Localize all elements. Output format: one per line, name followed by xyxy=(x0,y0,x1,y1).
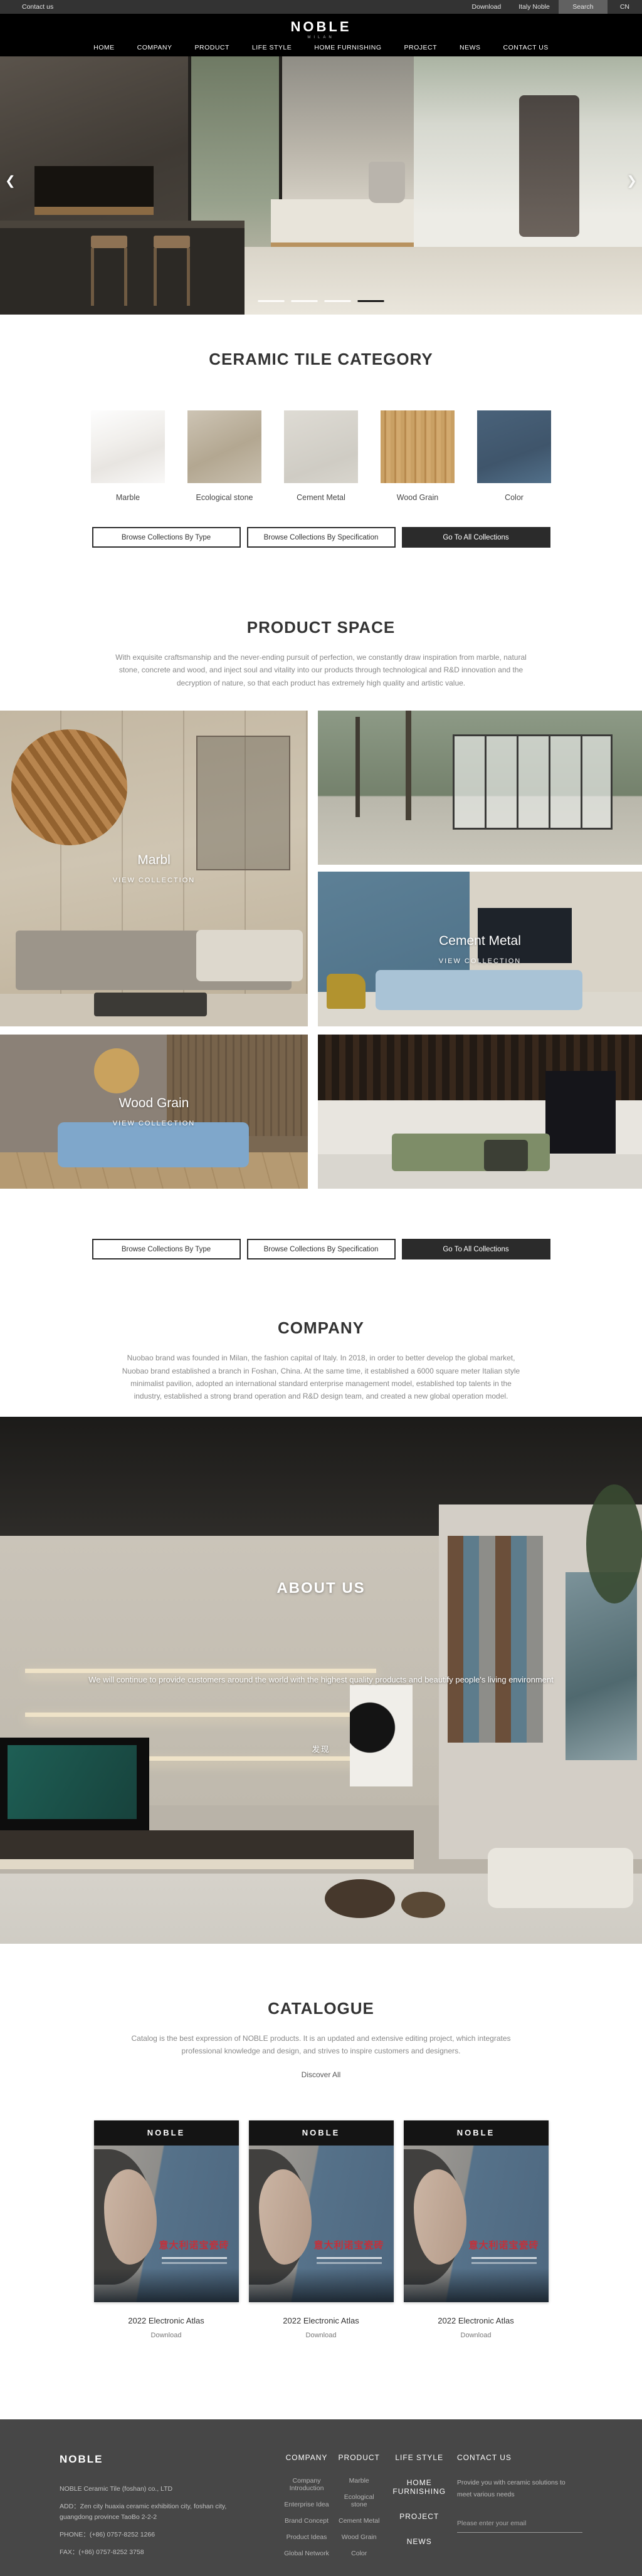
footer-contact-column: CONTACT US Provide you with ceramic solu… xyxy=(457,2453,582,2576)
catalogue-title: CATALOGUE xyxy=(0,1999,642,2018)
search-button[interactable]: Search xyxy=(559,0,608,14)
footer-link[interactable]: Color xyxy=(337,2550,381,2557)
company-description: Nuobao brand was founded in Milan, the f… xyxy=(120,1352,522,1403)
footer-company-name: NOBLE Ceramic Tile (foshan) co., LTD xyxy=(60,2485,254,2495)
swatch-cement-metal[interactable]: Cement Metal xyxy=(284,410,358,502)
cover-text-lines xyxy=(317,2257,382,2259)
swatch-marble[interactable]: Marble xyxy=(91,410,165,502)
about-caption: We will continue to provide customers ar… xyxy=(76,1671,566,1689)
footer-fax: FAX：(+86) 0757-8252 3758 xyxy=(60,2547,235,2557)
hero-stool xyxy=(91,236,127,306)
about-discover-link[interactable]: 发现 xyxy=(312,1743,330,1755)
cover-title-cn: 意大利诺宝瓷砖 xyxy=(307,2238,392,2251)
stool-legs xyxy=(91,248,127,306)
brand-logo-subtitle: MILAN xyxy=(0,36,642,39)
carousel-dot-1[interactable] xyxy=(258,300,285,302)
footer-column-company: COMPANY Company Introduction Enterprise … xyxy=(276,2453,337,2576)
footer-company-heading[interactable]: COMPANY xyxy=(276,2453,337,2462)
marble-tile-image xyxy=(91,410,165,483)
top-utility-bar: Contact us Download Italy Noble Search C… xyxy=(0,0,642,14)
cover-title-cn: 意大利诺宝瓷砖 xyxy=(152,2238,237,2251)
footer-link[interactable]: Marble xyxy=(337,2477,381,2485)
hero-fireplace xyxy=(34,166,154,215)
nav-item-product[interactable]: PRODUCT xyxy=(194,44,229,51)
cover-bottom-shade xyxy=(94,2268,239,2302)
footer-link[interactable]: Brand Concept xyxy=(276,2517,337,2525)
footer-link[interactable]: Ecological stone xyxy=(337,2493,381,2508)
cover-text-lines xyxy=(162,2257,227,2259)
contact-us-link[interactable]: Contact us xyxy=(22,3,53,11)
catalogue-item: NOBLE 意大利诺宝瓷砖 2022 Electronic Atlas Down… xyxy=(249,2120,394,2340)
category-title: CERAMIC TILE CATEGORY xyxy=(0,350,642,369)
site-footer: NOBLE NOBLE Ceramic Tile (foshan) co., L… xyxy=(0,2419,642,2576)
all-collections-button[interactable]: Go To All Collections xyxy=(402,527,550,548)
footer-link[interactable]: Company Introduction xyxy=(276,2477,337,2492)
chevron-right-icon[interactable]: ❯ xyxy=(626,173,637,189)
cover-bottom-shade xyxy=(404,2268,549,2302)
brand-logo[interactable]: NOBLE xyxy=(0,14,642,35)
gallery-buttons: Browse Collections By Type Browse Collec… xyxy=(0,1239,642,1259)
catalogue-item-name: 2022 Electronic Atlas xyxy=(404,2316,549,2325)
lounge-dark-panel xyxy=(545,1071,616,1154)
company-section: COMPANY Nuobao brand was founded in Mila… xyxy=(0,1259,642,1403)
download-link[interactable]: Download xyxy=(151,2332,182,2339)
footer-link[interactable]: Wood Grain xyxy=(337,2533,381,2541)
cover-brand: NOBLE xyxy=(94,2120,239,2146)
category-section: CERAMIC TILE CATEGORY Marble Ecological … xyxy=(0,315,642,548)
catalogue-cover[interactable]: NOBLE 意大利诺宝瓷砖 xyxy=(404,2120,549,2302)
cover-bottom-shade xyxy=(249,2268,394,2302)
catalogue-section: CATALOGUE Catalog is the best expression… xyxy=(0,1944,642,2340)
catalogue-cover[interactable]: NOBLE 意大利诺宝瓷砖 xyxy=(94,2120,239,2302)
swatch-ecological-stone[interactable]: Ecological stone xyxy=(187,410,261,502)
footer-link[interactable]: Enterprise Idea xyxy=(276,2501,337,2508)
topbar-right-group: Download Italy Noble Search CN xyxy=(463,0,642,14)
italy-noble-link[interactable]: Italy Noble xyxy=(510,3,559,11)
view-collection-link[interactable]: VIEW COLLECTION xyxy=(113,1120,195,1127)
swatch-wood-grain[interactable]: Wood Grain xyxy=(381,410,455,502)
footer-link[interactable]: Global Network xyxy=(276,2550,337,2557)
gallery-tile-wood-grain[interactable]: Wood Grain VIEW COLLECTION xyxy=(0,1035,308,1189)
company-title: COMPANY xyxy=(0,1318,642,1338)
showroom-console xyxy=(0,1830,414,1859)
catalogue-description: Catalog is the best expression of NOBLE … xyxy=(114,2032,528,2058)
cover-brand: NOBLE xyxy=(404,2120,549,2146)
ecological-stone-tile-image xyxy=(187,410,261,483)
nav-item-home[interactable]: HOME xyxy=(93,44,115,51)
cover-text-lines xyxy=(471,2257,537,2259)
showroom-coffee-table xyxy=(325,1879,395,1918)
cover-artwork: 意大利诺宝瓷砖 xyxy=(249,2146,394,2302)
catalogue-cover[interactable]: NOBLE 意大利诺宝瓷砖 xyxy=(249,2120,394,2302)
carousel-dot-2[interactable] xyxy=(292,300,318,302)
tile-name: Wood Grain xyxy=(119,1096,189,1111)
category-buttons: Browse Collections By Type Browse Collec… xyxy=(0,527,642,548)
browse-by-type-button[interactable]: Browse Collections By Type xyxy=(92,527,241,548)
about-title: ABOUT US xyxy=(0,1580,642,1597)
swatch-label: Wood Grain xyxy=(381,493,455,502)
catalogue-item: NOBLE 意大利诺宝瓷砖 2022 Electronic Atlas Down… xyxy=(404,2120,549,2340)
nav-item-company[interactable]: COMPANY xyxy=(137,44,172,51)
hero-bench xyxy=(271,199,414,252)
cement-metal-tile-image xyxy=(284,410,358,483)
nav-item-home-furnishing[interactable]: HOME FURNISHING xyxy=(314,44,381,51)
swatch-label: Color xyxy=(477,493,551,502)
footer-life-style-link[interactable]: LIFE STYLE xyxy=(381,2453,457,2462)
pavilion-glass-house xyxy=(453,734,613,830)
hero-stool xyxy=(154,236,190,306)
carousel-dot-3[interactable] xyxy=(325,300,351,302)
footer-company-info: NOBLE NOBLE Ceramic Tile (foshan) co., L… xyxy=(60,2453,254,2576)
product-space-description: With exquisite craftsmanship and the nev… xyxy=(114,651,528,689)
footer-news-link[interactable]: NEWS xyxy=(381,2537,457,2546)
lounge-chair xyxy=(484,1140,528,1171)
cover-artwork: 意大利诺宝瓷砖 xyxy=(404,2146,549,2302)
footer-project-link[interactable]: PROJECT xyxy=(381,2512,457,2521)
view-collection-link[interactable]: VIEW COLLECTION xyxy=(439,957,521,965)
view-collection-link[interactable]: VIEW COLLECTION xyxy=(113,877,195,884)
pavilion-tree xyxy=(406,711,411,820)
footer-phone: PHONE：(+86) 0757-8252 1266 xyxy=(60,2530,235,2540)
site-header: NOBLE MILAN HOME COMPANY PRODUCT LIFE ST… xyxy=(0,14,642,56)
browse-by-spec-button[interactable]: Browse Collections By Specification xyxy=(247,527,396,548)
hero-vase xyxy=(369,162,405,203)
footer-home-furnishing-link[interactable]: HOME FURNISHING xyxy=(381,2478,457,2496)
download-link[interactable]: Download xyxy=(463,3,510,11)
product-space-gallery: Marbl VIEW COLLECTION xyxy=(0,711,642,1189)
catalogue-item-name: 2022 Electronic Atlas xyxy=(94,2316,239,2325)
showroom-under-light xyxy=(0,1859,414,1869)
catalogue-item-name: 2022 Electronic Atlas xyxy=(249,2316,394,2325)
product-space-section: PRODUCT SPACE With exquisite craftsmansh… xyxy=(0,548,642,1259)
stool-seat xyxy=(91,236,127,248)
carousel-dot-4-active[interactable] xyxy=(358,300,384,302)
download-link[interactable]: Download xyxy=(306,2332,337,2339)
catalogue-covers: NOBLE 意大利诺宝瓷砖 2022 Electronic Atlas Down… xyxy=(0,2120,642,2340)
wood-grain-tile-image xyxy=(381,410,455,483)
download-link[interactable]: Download xyxy=(461,2332,492,2339)
nav-item-project[interactable]: PROJECT xyxy=(404,44,438,51)
browse-by-spec-button[interactable]: Browse Collections By Specification xyxy=(247,1239,396,1259)
swatch-label: Ecological stone xyxy=(187,493,261,502)
footer-address: ADD：Zen city huaxia ceramic exhibition c… xyxy=(60,2501,235,2522)
footer-column-menu: LIFE STYLE HOME FURNISHING PROJECT NEWS xyxy=(381,2453,457,2576)
color-tile-image xyxy=(477,410,551,483)
pavilion-tree xyxy=(355,717,360,817)
cover-title-cn: 意大利诺宝瓷砖 xyxy=(461,2238,547,2251)
footer-column-product: PRODUCT Marble Ecological stone Cement M… xyxy=(337,2453,381,2576)
nav-item-life-style[interactable]: LIFE STYLE xyxy=(252,44,292,51)
hero-carousel: ❮ ❯ xyxy=(0,56,642,315)
product-space-title: PRODUCT SPACE xyxy=(0,618,642,637)
gallery-tile-cement-metal[interactable]: Cement Metal VIEW COLLECTION xyxy=(318,872,642,1026)
showroom-sofa xyxy=(488,1848,633,1908)
nav-item-news[interactable]: NEWS xyxy=(460,44,481,51)
about-us-banner: ABOUT US We will continue to provide cus… xyxy=(0,1417,642,1944)
gallery-tile-dark-lounge[interactable] xyxy=(318,1035,642,1189)
browse-by-type-button[interactable]: Browse Collections By Type xyxy=(92,1239,241,1259)
nav-item-contact-us[interactable]: CONTACT US xyxy=(503,44,549,51)
stool-seat xyxy=(154,236,190,248)
main-nav: HOME COMPANY PRODUCT LIFE STYLE HOME FUR… xyxy=(0,44,642,51)
footer-logo: NOBLE xyxy=(60,2453,254,2466)
gallery-tile-pavilion[interactable] xyxy=(318,711,642,865)
footer-product-heading[interactable]: PRODUCT xyxy=(337,2453,381,2462)
email-input[interactable] xyxy=(457,2520,582,2533)
tile-name: Cement Metal xyxy=(439,934,521,949)
footer-link[interactable]: Product Ideas xyxy=(276,2533,337,2541)
stool-legs xyxy=(154,248,190,306)
hero-clothes-rack xyxy=(519,95,579,237)
cover-artwork: 意大利诺宝瓷砖 xyxy=(94,2146,239,2302)
footer-contact-heading[interactable]: CONTACT US xyxy=(457,2453,582,2462)
about-overlay: ABOUT US We will continue to provide cus… xyxy=(0,1580,642,1756)
showroom-tv-screen xyxy=(8,1745,137,1819)
carousel-indicators xyxy=(258,300,384,302)
catalogue-item: NOBLE 意大利诺宝瓷砖 2022 Electronic Atlas Down… xyxy=(94,2120,239,2340)
discover-all-link[interactable]: Discover All xyxy=(302,2070,341,2079)
footer-columns: COMPANY Company Introduction Enterprise … xyxy=(254,2453,582,2576)
swatch-color[interactable]: Color xyxy=(477,410,551,502)
category-swatches: Marble Ecological stone Cement Metal Woo… xyxy=(0,410,642,502)
chevron-left-icon[interactable]: ❮ xyxy=(5,173,16,189)
tile-name: Marbl xyxy=(137,853,171,868)
swatch-label: Cement Metal xyxy=(284,493,358,502)
all-collections-button[interactable]: Go To All Collections xyxy=(402,1239,550,1259)
showroom-coffee-table xyxy=(401,1892,445,1918)
gallery-tile-marble[interactable]: Marbl VIEW COLLECTION xyxy=(0,711,308,1026)
swatch-label: Marble xyxy=(91,493,165,502)
footer-link[interactable]: Cement Metal xyxy=(337,2517,381,2525)
language-toggle[interactable]: CN xyxy=(608,3,642,11)
footer-contact-text: Provide you with ceramic solutions to me… xyxy=(457,2477,570,2501)
cover-brand: NOBLE xyxy=(249,2120,394,2146)
